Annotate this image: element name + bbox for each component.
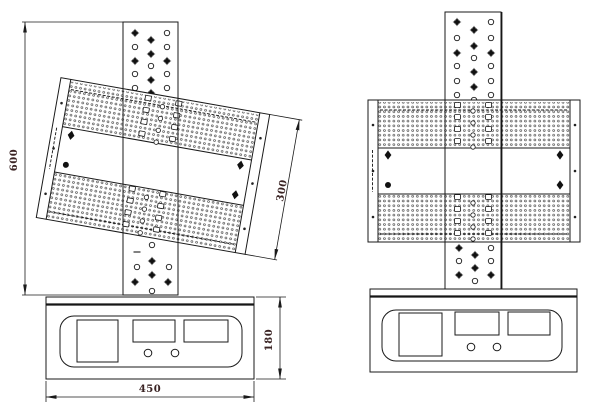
dimension-base-width: 450 [46,381,254,402]
figure-left-tilted-view: 600 300 450 180 [9,22,302,402]
tilt-plate [36,78,269,255]
extension-line [245,254,277,260]
dimension-label-600: 600 [9,149,20,171]
base-outline [370,289,577,372]
dimension-label-450: 450 [139,384,161,395]
drawing-canvas: 600 300 450 180 [0,0,600,415]
dimension-label-180: 180 [264,329,275,351]
technical-drawing: 600 300 450 180 [0,0,600,415]
base-unit [370,289,577,372]
dimension-label-300: 300 [275,179,290,203]
extension-line [270,115,302,121]
dimension-base-height: 180 [256,297,286,379]
figure-right-straight-view [368,12,580,372]
base-unit [46,297,254,379]
tilt-plate [368,100,580,242]
